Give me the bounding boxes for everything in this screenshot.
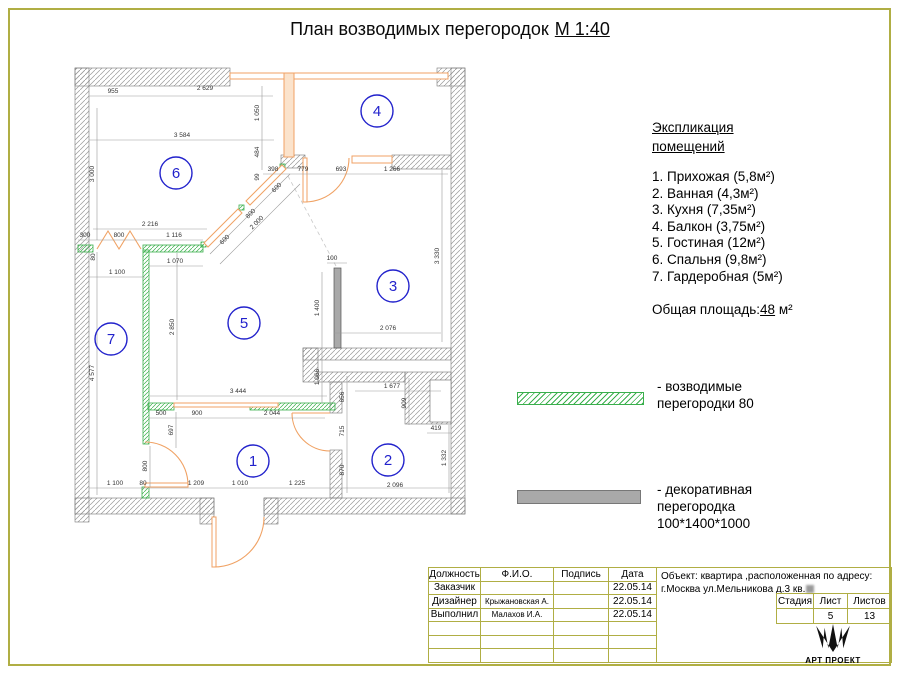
balcony-door-swing: [305, 158, 349, 202]
dimension-label: 99: [254, 173, 261, 181]
entrance-door-swing: [214, 517, 264, 567]
sign-cell: [554, 608, 609, 622]
date-cell: 22.05.14: [609, 581, 657, 595]
dimension-label: 909: [401, 397, 408, 408]
dimension-label: 2 076: [380, 325, 397, 332]
dimension-label: 2 216: [142, 221, 159, 228]
schedule-item: 3. Кухня (7,35м²): [652, 202, 890, 219]
name-cell: [481, 622, 554, 636]
total-area: Общая площадь:48 м²: [652, 302, 890, 317]
date-cell: [609, 649, 657, 663]
room-number-label: 5: [240, 315, 248, 332]
room-number-label: 2: [384, 452, 392, 469]
dimension-label: 3 444: [230, 388, 247, 395]
schedule-item: 4. Балкон (3,75м²): [652, 219, 890, 236]
object-line1: Объект: квартира ,расположенная по адрес…: [661, 570, 887, 583]
dimension-label: 600: [219, 233, 232, 246]
legend-new-partition-swatch: [517, 392, 644, 405]
dimension-label: 800: [114, 232, 125, 239]
dimension-label: 80: [90, 253, 97, 261]
drawing-sheet: План возводимых перегородокМ 1:40: [0, 0, 900, 675]
dimension-label: 2 629: [197, 85, 214, 92]
dimension-label: 1 116: [166, 232, 182, 239]
dimension-label: 1 050: [254, 104, 261, 121]
dimension-label: 870: [339, 464, 346, 475]
sheets-value: 13: [848, 609, 892, 624]
schedule-item: 1. Прихожая (5,8м²): [652, 169, 890, 186]
role-cell: [429, 622, 481, 636]
schedule-heading-line2: помещений: [652, 137, 890, 156]
col-header: Ф.И.О.: [481, 568, 554, 582]
walls: [75, 68, 465, 524]
role-cell: Дизайнер: [429, 595, 481, 609]
stage-header: Стадия: [777, 594, 814, 609]
room-number-label: 6: [172, 165, 180, 182]
name-cell: Малахов И.А.: [481, 608, 554, 622]
dimension-label: 1 010: [232, 480, 249, 487]
dimension-label: 2 044: [264, 410, 281, 417]
dimension-label: 1 070: [167, 258, 184, 265]
existing-elements: [97, 73, 448, 567]
logo-text: АРТ ПРОЕКТ: [795, 656, 871, 665]
dimension-label: 3 584: [174, 132, 191, 139]
dimension-label: 1 066: [314, 368, 321, 385]
dimension-label: 715: [339, 425, 346, 436]
dimension-label: 697: [168, 424, 175, 435]
dimension-label: 955: [108, 88, 119, 95]
schedule-heading-line1: Экспликация: [652, 118, 890, 137]
sheet-value: 5: [814, 609, 848, 624]
sign-cell: [554, 622, 609, 636]
dimension-label: 1 209: [188, 480, 205, 487]
date-cell: 22.05.14: [609, 608, 657, 622]
room-number-label: 4: [373, 103, 381, 120]
name-cell: [481, 635, 554, 649]
dimension-label: 1 677: [384, 383, 401, 390]
sign-cell: [554, 649, 609, 663]
dimension-label: 1 100: [107, 480, 124, 487]
dimension-label: 1 266: [384, 166, 401, 173]
dimension-label: 1 100: [109, 269, 126, 276]
bath-door-swing: [292, 413, 330, 451]
dimension-label: 2 850: [169, 318, 176, 335]
room-number-label: 1: [249, 453, 257, 470]
legend-new-partition-label: - возводимые перегородки 80: [657, 378, 754, 412]
col-header: Подпись: [554, 568, 609, 582]
dimension-label: 4 577: [89, 364, 96, 381]
entrance-door-leaf: [212, 517, 216, 567]
dimension-label: 900: [192, 410, 203, 417]
col-header: Должность: [429, 568, 481, 582]
room-schedule: Экспликация помещений 1. Прихожая (5,8м²…: [652, 118, 890, 317]
dimension-label: 500: [156, 410, 167, 417]
room-numbers: 1234567: [95, 95, 409, 477]
role-cell: Выполнил: [429, 608, 481, 622]
dimension-label: 693: [336, 166, 347, 173]
dimension-label: 484: [254, 146, 261, 157]
balcony-door-leaf: [303, 158, 307, 202]
role-cell: Заказчик: [429, 581, 481, 595]
room-number-label: 3: [389, 278, 397, 295]
dimension-label: 1 332: [441, 449, 448, 466]
sliding-door: [174, 403, 278, 407]
date-cell: [609, 622, 657, 636]
name-cell: [481, 581, 554, 595]
sign-cell: [554, 635, 609, 649]
schedule-item: 2. Ванная (4,3м²): [652, 186, 890, 203]
wardrobe-door-swing: [145, 442, 188, 485]
dimension-label: 779: [298, 166, 309, 173]
dimension-label: 1 400: [314, 299, 321, 316]
legend-decorative-partition-label: - декоративная перегородка 100*1400*1000: [657, 481, 752, 532]
dimension-label: 398: [268, 166, 279, 173]
sign-cell: [554, 595, 609, 609]
schedule-item: 5. Гостиная (12м²): [652, 235, 890, 252]
dimension-label: 1 225: [289, 480, 306, 487]
window-kitchen: [352, 156, 392, 163]
sheet-header: Лист: [814, 594, 848, 609]
dimension-label: 419: [431, 425, 442, 432]
sign-cell: [554, 581, 609, 595]
room-number-label: 7: [107, 331, 115, 348]
date-cell: [609, 635, 657, 649]
company-logo: АРТ ПРОЕКТ: [795, 624, 871, 665]
balcony-glazed-wall: [284, 73, 294, 157]
date-cell: 22.05.14: [609, 595, 657, 609]
crown-m-icon: [813, 624, 853, 652]
schedule-item: 6. Спальня (9,8м²): [652, 252, 890, 269]
title-block: Должность Ф.И.О. Подпись Дата Заказчик 2…: [428, 567, 892, 663]
stage-value: [777, 609, 814, 624]
dimension-lines: [78, 86, 463, 495]
sheets-header: Листов: [848, 594, 892, 609]
dimension-label: 600: [271, 181, 284, 194]
total-area-value: 48: [760, 302, 775, 317]
name-cell: Крыжановская А.: [481, 595, 554, 609]
role-cell: [429, 649, 481, 663]
wardrobe-door-leaf: [145, 483, 188, 487]
new-partitions: [78, 164, 335, 498]
object-section: Объект: квартира ,расположенная по адрес…: [656, 567, 892, 663]
dimension-label: 300: [80, 232, 91, 239]
decorative-partition: [334, 268, 341, 348]
dimension-label: 656: [339, 391, 346, 402]
dimension-label: 3 000: [89, 165, 96, 182]
col-header: Дата: [609, 568, 657, 582]
dimension-label: 2 096: [387, 482, 404, 489]
name-cell: [481, 649, 554, 663]
stage-sheet-table: Стадия Лист Листов 5 13: [776, 593, 892, 624]
dimension-label: 100: [327, 255, 338, 262]
dimension-label: 3 330: [434, 247, 441, 264]
signature-table: Должность Ф.И.О. Подпись Дата Заказчик 2…: [428, 567, 657, 663]
zone-boundary: [288, 176, 336, 266]
window-top: [230, 73, 448, 79]
dimension-label: 800: [142, 460, 149, 471]
schedule-item: 7. Гардеробная (5м²): [652, 269, 890, 286]
legend-decorative-partition-swatch: [517, 490, 641, 504]
duct-shaft: [430, 380, 451, 422]
dimension-label: 80: [139, 480, 147, 487]
role-cell: [429, 635, 481, 649]
